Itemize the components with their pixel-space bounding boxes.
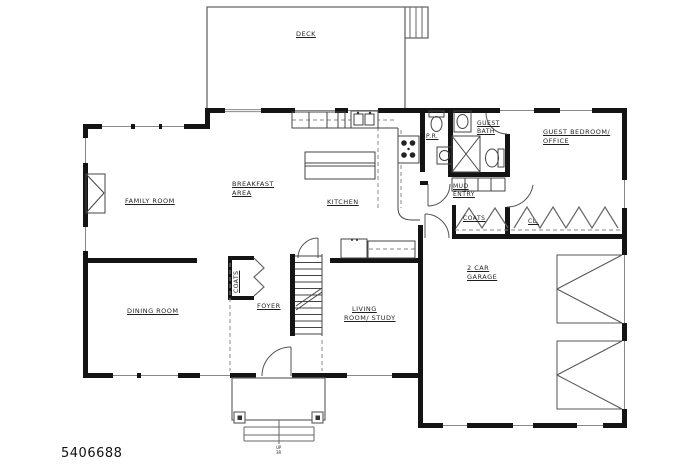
stairs — [295, 254, 322, 336]
guest-bath-label-line2: BATH — [477, 129, 495, 135]
garage-label-line1: 2 CAR — [467, 265, 489, 272]
family-room-label: FAMILY ROOM — [125, 198, 175, 205]
floor-plan: DECK FAMILY ROOM BREAKFAST AREA KITCHEN … — [0, 0, 700, 466]
garage-label-line2: GARAGE — [467, 274, 497, 281]
breakfast-area-label-line1: BREAKFAST — [232, 181, 274, 188]
porch-steps — [244, 420, 314, 444]
front-door-opening — [256, 373, 292, 378]
bath-vanity — [454, 111, 471, 132]
kitchen-island — [305, 152, 375, 179]
hall-coats-label: COATS — [463, 216, 485, 222]
living-room-label-line1: LIVING — [352, 306, 377, 313]
kitchen-sink — [351, 111, 378, 128]
powder-room-label: P.R. — [426, 134, 438, 140]
stove — [398, 136, 419, 163]
foyer-coats-label: COATS — [234, 271, 240, 293]
mud-entry-label-line1: MUD — [453, 184, 469, 190]
floor-plan-drawing — [0, 0, 700, 466]
bath-toilet — [486, 149, 505, 167]
garage-door-opening — [622, 341, 627, 409]
plan-number: 5406688 — [61, 446, 122, 461]
fireplace — [86, 174, 105, 213]
mud-entry-label-line2: ENTRY — [453, 192, 475, 198]
slider-door — [225, 108, 261, 113]
garage-door-opening — [622, 255, 627, 323]
guest-bedroom-label-line1: GUEST BEDROOM/ — [543, 129, 610, 136]
porch — [232, 378, 325, 423]
living-room-label-line2: ROOM/ STUDY — [344, 315, 396, 322]
guest-bedroom-label-line2: OFFICE — [543, 138, 569, 145]
garage-door-swings — [557, 255, 622, 409]
shower — [452, 136, 480, 172]
pr-toilet — [429, 111, 444, 132]
kitchen-label: KITCHEN — [327, 199, 359, 206]
hall-closet-label: CL. — [528, 219, 539, 225]
porch-steps-label-line2: 3R — [276, 451, 281, 455]
guest-bath-label-line1: GUEST — [477, 121, 500, 127]
bifold-doors — [254, 207, 618, 296]
dining-room-label: DINING ROOM — [127, 308, 179, 315]
deck-outline — [207, 7, 428, 108]
deck-stairs — [410, 7, 422, 38]
breakfast-area-label-line2: AREA — [232, 190, 252, 197]
deck-label: DECK — [296, 31, 316, 38]
foyer-label: FOYER — [257, 303, 281, 310]
